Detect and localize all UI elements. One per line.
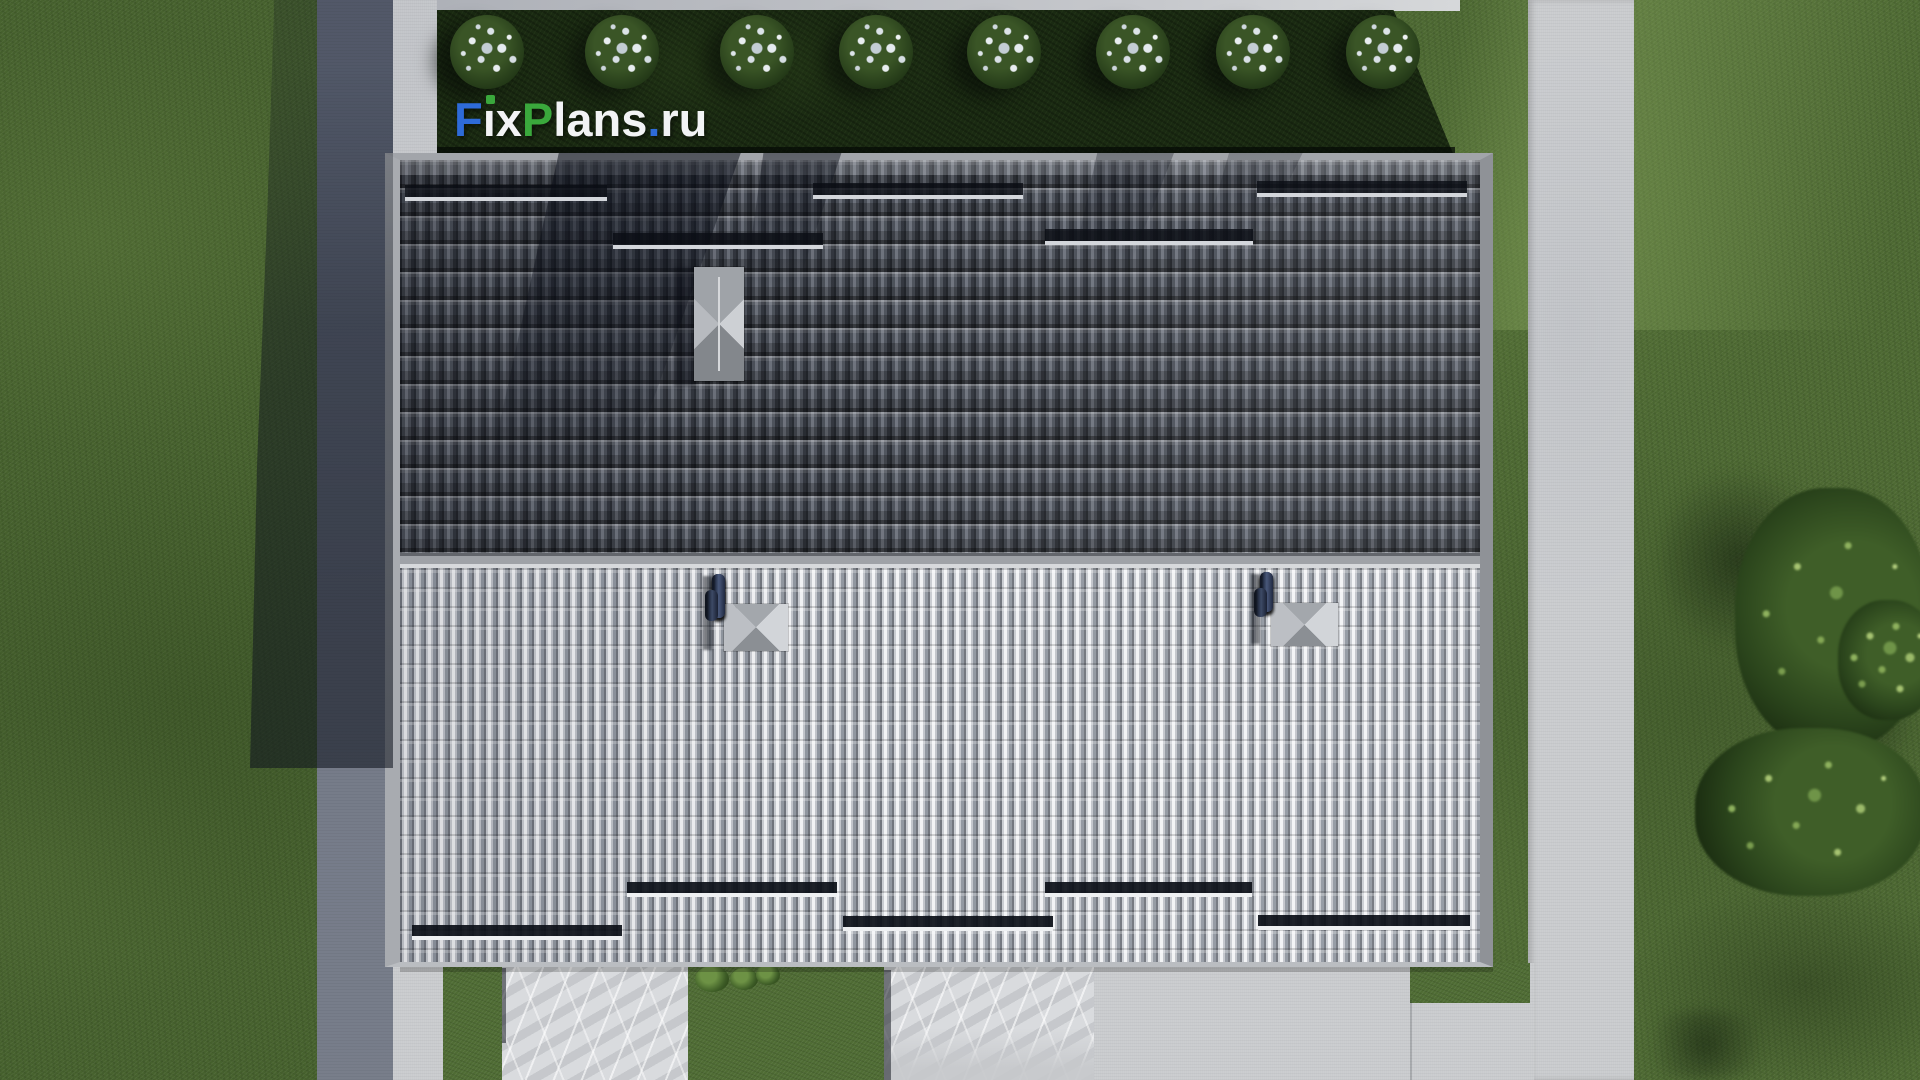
shrub <box>585 15 659 89</box>
house-cast-shadow <box>250 0 393 768</box>
roof-vent-pipes <box>1260 572 1326 612</box>
eave-shadow <box>400 967 1493 972</box>
shrub <box>839 15 913 89</box>
logo-letters: lans <box>553 93 647 146</box>
walkway-edge-shadow <box>502 968 506 1043</box>
snow-guard-bar <box>412 925 622 940</box>
roof-vent-pipe <box>705 590 718 621</box>
ridge-tiles <box>400 160 1480 175</box>
snow-guard-bar <box>613 233 823 249</box>
snow-guard-bar <box>405 185 607 201</box>
marble-walkway <box>884 965 1094 1080</box>
shrub <box>450 15 524 89</box>
logo-letter: P <box>522 93 553 146</box>
snow-guard-bar <box>843 916 1053 931</box>
path-corner-top <box>393 0 439 160</box>
tree-canopy <box>1695 728 1920 896</box>
shrub <box>1096 15 1170 89</box>
logo-tld: ru <box>660 93 707 146</box>
roof-ridge-divider <box>400 553 1480 568</box>
snow-guard-bar <box>1257 181 1467 197</box>
logo-dot: . <box>647 93 660 146</box>
snow-guard-bar <box>627 882 837 897</box>
garden-path-right <box>1528 0 1634 1080</box>
shrub <box>1346 15 1420 89</box>
watermark-logo: FıxPlans.ru <box>454 92 707 144</box>
sunlit-lawn-highlight <box>1430 0 1920 330</box>
grass-strip <box>443 965 503 1080</box>
snow-guard-bar <box>1045 229 1253 245</box>
snow-guard-bar <box>1258 915 1470 930</box>
roof-vent-pipe <box>1254 588 1267 617</box>
shrub <box>720 15 794 89</box>
path-top-edge <box>437 0 1460 11</box>
snow-guard-bar <box>813 183 1023 199</box>
roof-dark-shading <box>400 160 1480 553</box>
logo-letter: x <box>496 93 522 146</box>
snow-guard-bar <box>1045 882 1252 897</box>
logo-letter-i: ı <box>483 92 496 147</box>
tree-shadow <box>1630 1010 1780 1080</box>
logo-i-dot <box>486 95 495 104</box>
slab-joint <box>1410 1000 1412 1080</box>
roof-vent-pipes <box>712 574 778 618</box>
shrub <box>967 15 1041 89</box>
aerial-render: FıxPlans.ru <box>0 0 1920 1080</box>
tree-canopy <box>1838 600 1920 720</box>
chimney <box>694 267 744 381</box>
shrub <box>1216 15 1290 89</box>
walkway-edge-shadow <box>884 970 891 1080</box>
marble-walkway <box>502 965 688 1080</box>
logo-letter: F <box>454 93 483 146</box>
